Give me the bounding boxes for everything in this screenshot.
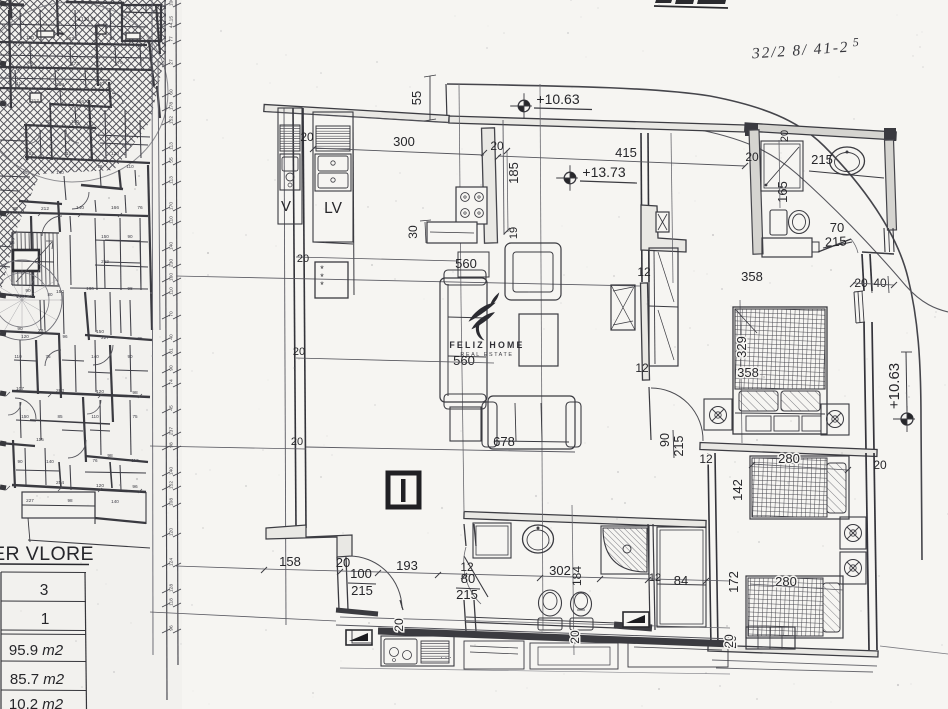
svg-text:158: 158: [279, 554, 301, 569]
svg-text:V: V: [281, 198, 291, 215]
svg-text:113: 113: [169, 142, 175, 150]
svg-text:150: 150: [101, 234, 109, 239]
svg-text:77: 77: [169, 36, 175, 42]
svg-text:215: 215: [672, 436, 686, 457]
svg-text:85.7 m2: 85.7 m2: [10, 671, 65, 688]
svg-text:150: 150: [71, 119, 79, 125]
svg-text:166: 166: [86, 286, 94, 291]
svg-text:20: 20: [745, 150, 759, 164]
svg-text:12: 12: [649, 572, 661, 584]
svg-text:107: 107: [16, 386, 24, 392]
svg-text:84: 84: [674, 573, 688, 588]
svg-text:98: 98: [127, 286, 133, 291]
svg-text:76: 76: [117, 60, 123, 66]
svg-text:170: 170: [169, 202, 175, 210]
svg-text:98: 98: [67, 498, 73, 503]
svg-text:12: 12: [635, 361, 649, 375]
svg-text:55: 55: [409, 91, 424, 105]
svg-text:110: 110: [14, 354, 22, 359]
svg-text:140: 140: [91, 354, 99, 359]
svg-text:284: 284: [56, 82, 64, 88]
svg-text:227: 227: [26, 498, 34, 503]
svg-text:40: 40: [873, 276, 887, 290]
svg-text:140: 140: [46, 459, 54, 464]
svg-text:212: 212: [31, 98, 39, 104]
svg-text:85: 85: [137, 336, 143, 341]
svg-text:20: 20: [297, 253, 309, 265]
svg-text:120: 120: [169, 528, 175, 536]
svg-text:120: 120: [96, 483, 104, 489]
svg-text:284: 284: [26, 151, 34, 157]
svg-text:10.2 m2: 10.2 m2: [9, 696, 64, 709]
svg-text:100: 100: [169, 0, 175, 6]
svg-text:100: 100: [350, 566, 372, 581]
svg-text:166: 166: [76, 99, 84, 105]
svg-text:81: 81: [169, 348, 175, 354]
svg-text:95: 95: [22, 170, 28, 175]
svg-text:55: 55: [9, 240, 15, 245]
svg-text:212: 212: [41, 206, 49, 212]
svg-text:120: 120: [96, 389, 104, 395]
svg-text:20: 20: [336, 555, 350, 570]
svg-text:1: 1: [41, 611, 50, 628]
svg-text:55: 55: [169, 157, 175, 163]
svg-text:215: 215: [456, 587, 478, 602]
svg-text:140: 140: [76, 205, 84, 211]
svg-text:74: 74: [169, 379, 175, 385]
svg-text:96: 96: [169, 625, 175, 631]
svg-text:80: 80: [47, 292, 53, 297]
svg-text:5: 5: [852, 35, 859, 49]
svg-text:90: 90: [127, 234, 133, 239]
svg-text:20: 20: [293, 346, 305, 358]
svg-text:140: 140: [16, 294, 24, 299]
svg-text:ER VLORE: ER VLORE: [0, 543, 94, 565]
svg-text:108: 108: [169, 498, 175, 506]
svg-text:110: 110: [91, 414, 99, 419]
svg-text:230: 230: [169, 259, 175, 267]
svg-text:96: 96: [62, 334, 68, 339]
svg-text:+10.63: +10.63: [886, 363, 903, 409]
svg-text:90: 90: [12, 206, 18, 212]
svg-text:329: 329: [734, 336, 749, 358]
svg-text:95.9 m2: 95.9 m2: [9, 642, 64, 659]
svg-text:76: 76: [137, 205, 143, 211]
svg-text:90: 90: [17, 459, 23, 464]
svg-text:120: 120: [111, 151, 119, 157]
svg-text:3: 3: [40, 582, 49, 599]
svg-text:140: 140: [96, 81, 104, 87]
svg-text:20: 20: [291, 436, 303, 448]
svg-text:◄130.31: ◄130.31: [76, 17, 96, 23]
svg-text:40: 40: [169, 334, 175, 340]
svg-text:262: 262: [66, 36, 74, 42]
svg-text:70: 70: [169, 311, 175, 317]
svg-text:140: 140: [111, 499, 119, 504]
svg-text:140: 140: [169, 467, 175, 475]
svg-text:90: 90: [45, 119, 51, 125]
svg-text:+10.63: +10.63: [536, 91, 579, 107]
svg-text:20: 20: [392, 618, 406, 632]
svg-text:254: 254: [56, 480, 64, 486]
svg-text:172: 172: [726, 571, 741, 593]
svg-text:44,15: 44,15: [169, 16, 175, 29]
svg-text:237: 237: [169, 427, 175, 435]
svg-text:90: 90: [127, 354, 133, 359]
svg-text:118: 118: [169, 598, 175, 606]
svg-text:12: 12: [637, 265, 651, 279]
svg-text:107: 107: [66, 151, 74, 157]
svg-text:173: 173: [71, 61, 79, 67]
svg-text:227: 227: [101, 335, 109, 340]
svg-text:140: 140: [56, 170, 64, 175]
svg-text:124: 124: [169, 558, 175, 566]
svg-text:150: 150: [21, 414, 29, 419]
svg-text:20: 20: [722, 634, 736, 648]
svg-text:193: 193: [396, 558, 418, 573]
svg-text:27: 27: [169, 59, 175, 65]
svg-text:184: 184: [570, 566, 584, 586]
svg-text:212: 212: [101, 259, 109, 264]
svg-text:110: 110: [126, 164, 134, 169]
svg-text:160: 160: [169, 273, 175, 281]
svg-text:90: 90: [27, 60, 33, 66]
svg-text:75: 75: [132, 414, 138, 419]
svg-text:113: 113: [169, 176, 175, 184]
svg-text:178: 178: [169, 102, 175, 110]
svg-text:215: 215: [825, 233, 847, 249]
svg-text:300: 300: [393, 134, 415, 149]
svg-text:20: 20: [300, 130, 314, 144]
svg-text:96: 96: [132, 484, 138, 490]
svg-text:110: 110: [16, 81, 24, 87]
svg-text:142: 142: [730, 479, 745, 501]
svg-text:12: 12: [699, 452, 713, 466]
svg-text:20: 20: [568, 630, 582, 644]
svg-text:98: 98: [107, 453, 113, 459]
svg-text:75: 75: [45, 354, 51, 359]
svg-text:263: 263: [56, 388, 64, 394]
svg-text:LV: LV: [324, 200, 342, 217]
svg-text:185: 185: [506, 162, 521, 184]
svg-text:560: 560: [453, 353, 475, 368]
svg-text:90: 90: [658, 433, 672, 447]
svg-text:152: 152: [169, 481, 175, 489]
svg-text:110: 110: [169, 287, 175, 295]
svg-text:166: 166: [111, 205, 119, 211]
svg-text:152: 152: [169, 116, 175, 124]
svg-text:120: 120: [21, 334, 29, 339]
svg-text:215: 215: [351, 583, 373, 598]
svg-text:*: *: [320, 280, 324, 290]
svg-text:20: 20: [873, 458, 887, 472]
svg-text:90: 90: [169, 365, 175, 371]
svg-text:415: 415: [615, 145, 637, 160]
svg-text:165: 165: [775, 181, 790, 203]
svg-text:358: 358: [737, 365, 759, 380]
svg-text:98: 98: [132, 390, 138, 396]
svg-text:20: 20: [779, 130, 791, 142]
svg-text:150: 150: [26, 35, 34, 41]
svg-text:45: 45: [169, 405, 175, 411]
svg-text:90: 90: [25, 288, 31, 294]
svg-text:280: 280: [778, 451, 800, 466]
svg-text:110: 110: [169, 216, 175, 224]
svg-text:76: 76: [92, 458, 98, 463]
svg-text:85: 85: [57, 414, 63, 419]
svg-text:76: 76: [97, 164, 103, 169]
svg-text:60: 60: [169, 89, 175, 95]
svg-text:80: 80: [461, 571, 475, 586]
svg-text:90: 90: [17, 326, 23, 332]
svg-text:FELIZ HOME: FELIZ HOME: [449, 340, 524, 350]
svg-text:30: 30: [406, 225, 420, 239]
svg-text:358: 358: [741, 269, 763, 284]
svg-text:215: 215: [811, 152, 833, 167]
svg-text:140: 140: [169, 242, 175, 250]
svg-text:128: 128: [169, 584, 175, 592]
svg-text:115: 115: [36, 437, 44, 443]
svg-text:302: 302: [549, 563, 571, 578]
svg-text:95: 95: [109, 36, 115, 42]
svg-text:678: 678: [493, 434, 515, 449]
svg-text:110: 110: [131, 458, 139, 463]
svg-text:+13.73: +13.73: [582, 164, 625, 180]
svg-text:. . .: . . .: [440, 651, 451, 660]
svg-text:560: 560: [455, 256, 477, 271]
